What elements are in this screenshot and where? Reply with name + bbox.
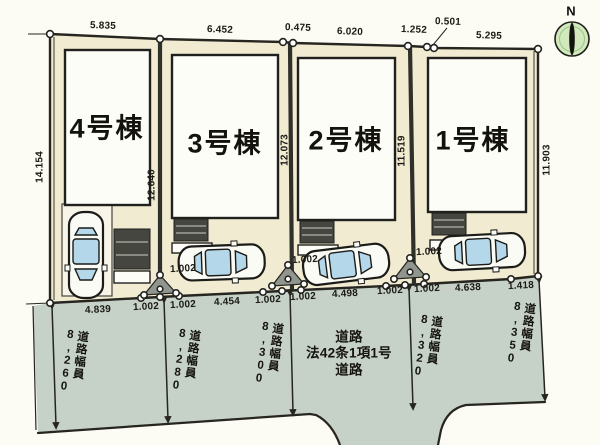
site-plan: 5.835 6.452 0.475 6.020 1.252 0.501 5.29… [0, 0, 600, 445]
car-icon-lot1 [438, 228, 526, 274]
dim-bottom-3: 4.454 [214, 296, 241, 308]
dim-top-3: 6.020 [337, 26, 363, 38]
dim-bottom-4: 1.002 [255, 294, 282, 306]
plan-drawing [0, 0, 600, 445]
dim-bottom-6: 4.498 [332, 288, 359, 300]
compass-north-label: N [566, 4, 576, 19]
car-icon-lot4 [65, 212, 107, 298]
dim-boundary-2-1: 11.519 [397, 135, 408, 166]
dim-bottom-5: 1.002 [290, 291, 317, 303]
building-4-label: 4号棟 [69, 107, 144, 146]
dim-left-side: 14.154 [35, 151, 46, 183]
dim-bottom-0: 4.839 [85, 304, 112, 316]
dim-right-side: 11.903 [542, 144, 553, 175]
dim-top-4: 1.252 [401, 24, 427, 36]
dim-top-1: 6.452 [207, 24, 233, 36]
dim-boundary-4-3: 12.640 [147, 169, 158, 201]
dim-bottom-1: 1.002 [133, 301, 160, 313]
dim-bottom-8: 1.002 [414, 283, 441, 295]
road-name-line-1: 道路 [306, 329, 392, 345]
dim-top-0: 5.835 [90, 20, 116, 32]
dim-bottom-10: 1.418 [508, 280, 535, 292]
building-2-label: 2号棟 [308, 119, 383, 158]
dim-boundary-3-2: 12.073 [280, 134, 291, 166]
dim-bottom-2: 1.002 [170, 299, 197, 311]
dim-top-6: 5.295 [476, 30, 502, 42]
dim-top-5: 0.501 [435, 16, 461, 28]
dim-bottom-9: 4.638 [455, 282, 482, 294]
building-3-label: 3号棟 [187, 122, 262, 161]
road-name-line-3: 道路 [306, 362, 392, 378]
dim-strip-0: 1.002 [170, 263, 197, 275]
building-1-label: 1号棟 [435, 119, 510, 158]
road-area [33, 276, 545, 445]
dim-top-2: 0.475 [285, 22, 311, 34]
dim-strip-2: 1.002 [416, 246, 443, 258]
dim-strip-1: 1.002 [292, 254, 319, 266]
road-name-line-2: 法42条1項1号 [306, 346, 392, 362]
road-name: 道路 法42条1項1号 道路 [306, 329, 392, 378]
compass-icon [555, 22, 589, 56]
dim-bottom-7: 1.002 [377, 285, 404, 297]
